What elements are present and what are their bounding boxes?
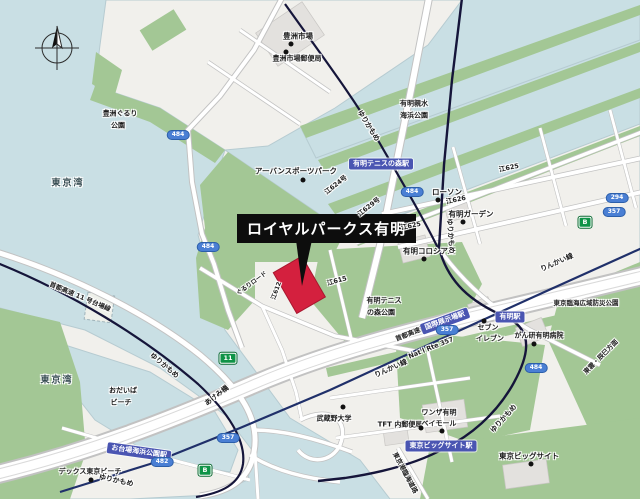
wangan-b-shield-2: B: [199, 465, 212, 476]
shinonome-tatsumi: 東雲・辰巳方面: [583, 339, 620, 376]
route-484-d: 484: [525, 363, 548, 373]
wanza-ariake-2: ベイモール: [422, 421, 457, 428]
toyosu-market: 豊洲市場: [283, 32, 313, 40]
tennis-forest-park-2: の森公園: [367, 310, 395, 317]
urban-sports-park: アーバンスポーツパーク: [255, 167, 337, 175]
route-357-c: 357: [603, 207, 626, 217]
decks-tokyo-beach: デックス東京ビーチ: [59, 469, 122, 476]
seven-eleven-1: セブン: [478, 325, 499, 332]
ariake-area-map: ロイヤルパークス有明 東京湾東京湾豊洲市場豊洲市場郵便局豊洲ぐるり公園アーバンス…: [0, 0, 640, 499]
poi-dot-5: [422, 257, 427, 262]
road-e626: 江626: [446, 195, 467, 206]
rinkai-line-1: りんかい線: [540, 253, 575, 274]
toyosu-post-office: 豊洲市場郵便局: [273, 56, 322, 63]
odaiba-beach-2: ビーチ: [111, 400, 132, 407]
route-357-b: 357: [217, 433, 240, 443]
rinkai-road: 東京港臨海道路: [391, 451, 418, 494]
poi-dot-1: [284, 50, 289, 55]
road-e624: 江624号: [324, 174, 349, 195]
route-482: 482: [151, 457, 174, 467]
national-route-357: Nat'l Rte 357: [408, 336, 455, 360]
seven-eleven-2: イレブン: [476, 336, 504, 343]
yurikamome-line-5: ゆりかもめ: [490, 404, 519, 435]
route-484-a: 484: [167, 130, 190, 140]
shinsui-park-1: 有明親水: [400, 101, 428, 108]
poi-dot-8: [341, 405, 346, 410]
poi-dot-10: [440, 429, 445, 434]
tennis-forest-park-1: 有明テニス: [367, 298, 402, 305]
odaiba-beach-1: おだいば: [109, 388, 137, 395]
ariake-station: 有明駅: [496, 312, 525, 323]
yurikamome-line-2: ゆりかもめ: [445, 218, 454, 253]
poi-dot-4: [461, 220, 466, 225]
poi-dot-7: [532, 342, 537, 347]
musashino-univ: 武蔵野大学: [317, 416, 352, 423]
wanza-ariake-1: ワンザ有明: [422, 410, 457, 417]
cancer-hospital: がん研有明病院: [515, 333, 564, 340]
poi-dot-6: [482, 319, 487, 324]
route-357-a: 357: [436, 325, 459, 335]
akemi-bridge: あけみ橋: [204, 385, 230, 408]
tokyo-bay-north: 東京湾: [51, 180, 84, 189]
gururi-road: ぐるりロード: [236, 271, 269, 297]
route-294: 294: [606, 193, 629, 203]
road-e625-a: 江625: [499, 163, 520, 174]
ariake-tennis-no-mori-station: 有明テニスの森駅: [349, 159, 413, 170]
bousai-park: 東京臨海広域防災公園: [554, 300, 619, 307]
route-484-c: 484: [401, 187, 424, 197]
toyosu-gururi-park-2: 公園: [111, 123, 125, 130]
label-layer: 東京湾東京湾豊洲市場豊洲市場郵便局豊洲ぐるり公園アーバンスポーツパーク有明親水海…: [0, 0, 640, 499]
shuto-11-daiba: 首都高速 11 号台場線: [49, 281, 112, 313]
poi-dot-11: [529, 462, 534, 467]
yurikamome-line-3: ゆりかもめ: [148, 352, 179, 380]
rinkai-line-2: りんかい線: [374, 359, 409, 380]
shuto-11-shield: 11: [219, 353, 236, 364]
road-e625-b: 江625: [401, 221, 422, 232]
wangan-b-shield-1: B: [579, 217, 592, 228]
poi-dot-12: [89, 478, 94, 483]
toyosu-gururi-park-1: 豊洲ぐるり: [103, 111, 138, 118]
yurikamome-line-1: ゆりかもめ: [356, 109, 380, 142]
tokyo-big-sight: 東京ビッグサイト: [499, 452, 559, 460]
poi-dot-3: [436, 198, 441, 203]
tft-post-office: TFT 内郵便局: [378, 422, 423, 429]
route-484-b: 484: [197, 242, 220, 252]
road-e629: 江629号: [357, 196, 382, 217]
shinsui-park-2: 海浜公園: [400, 113, 428, 120]
tokyo-big-sight-station: 東京ビッグサイト駅: [406, 441, 477, 452]
yurikamome-line-4: ゆりかもめ: [98, 474, 134, 488]
ariake-garden: 有明ガーデン: [449, 210, 494, 218]
poi-dot-0: [289, 42, 294, 47]
road-e612: 江612: [271, 281, 283, 300]
road-e615: 江615: [326, 275, 347, 286]
poi-dot-9: [419, 426, 424, 431]
poi-dot-2: [301, 178, 306, 183]
tokyo-bay-south: 東京湾: [40, 377, 73, 386]
